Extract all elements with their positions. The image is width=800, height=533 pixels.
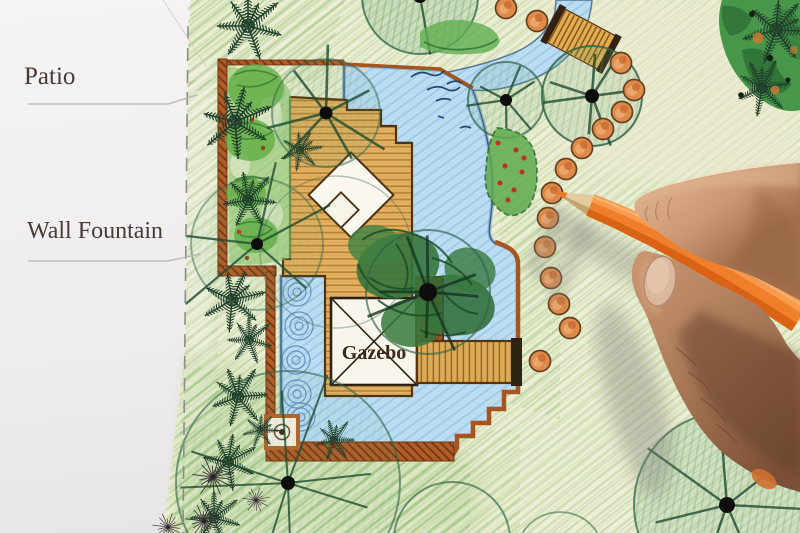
svg-text:Patio: Patio xyxy=(24,63,75,90)
svg-text:Wall Fountain: Wall Fountain xyxy=(27,218,163,244)
